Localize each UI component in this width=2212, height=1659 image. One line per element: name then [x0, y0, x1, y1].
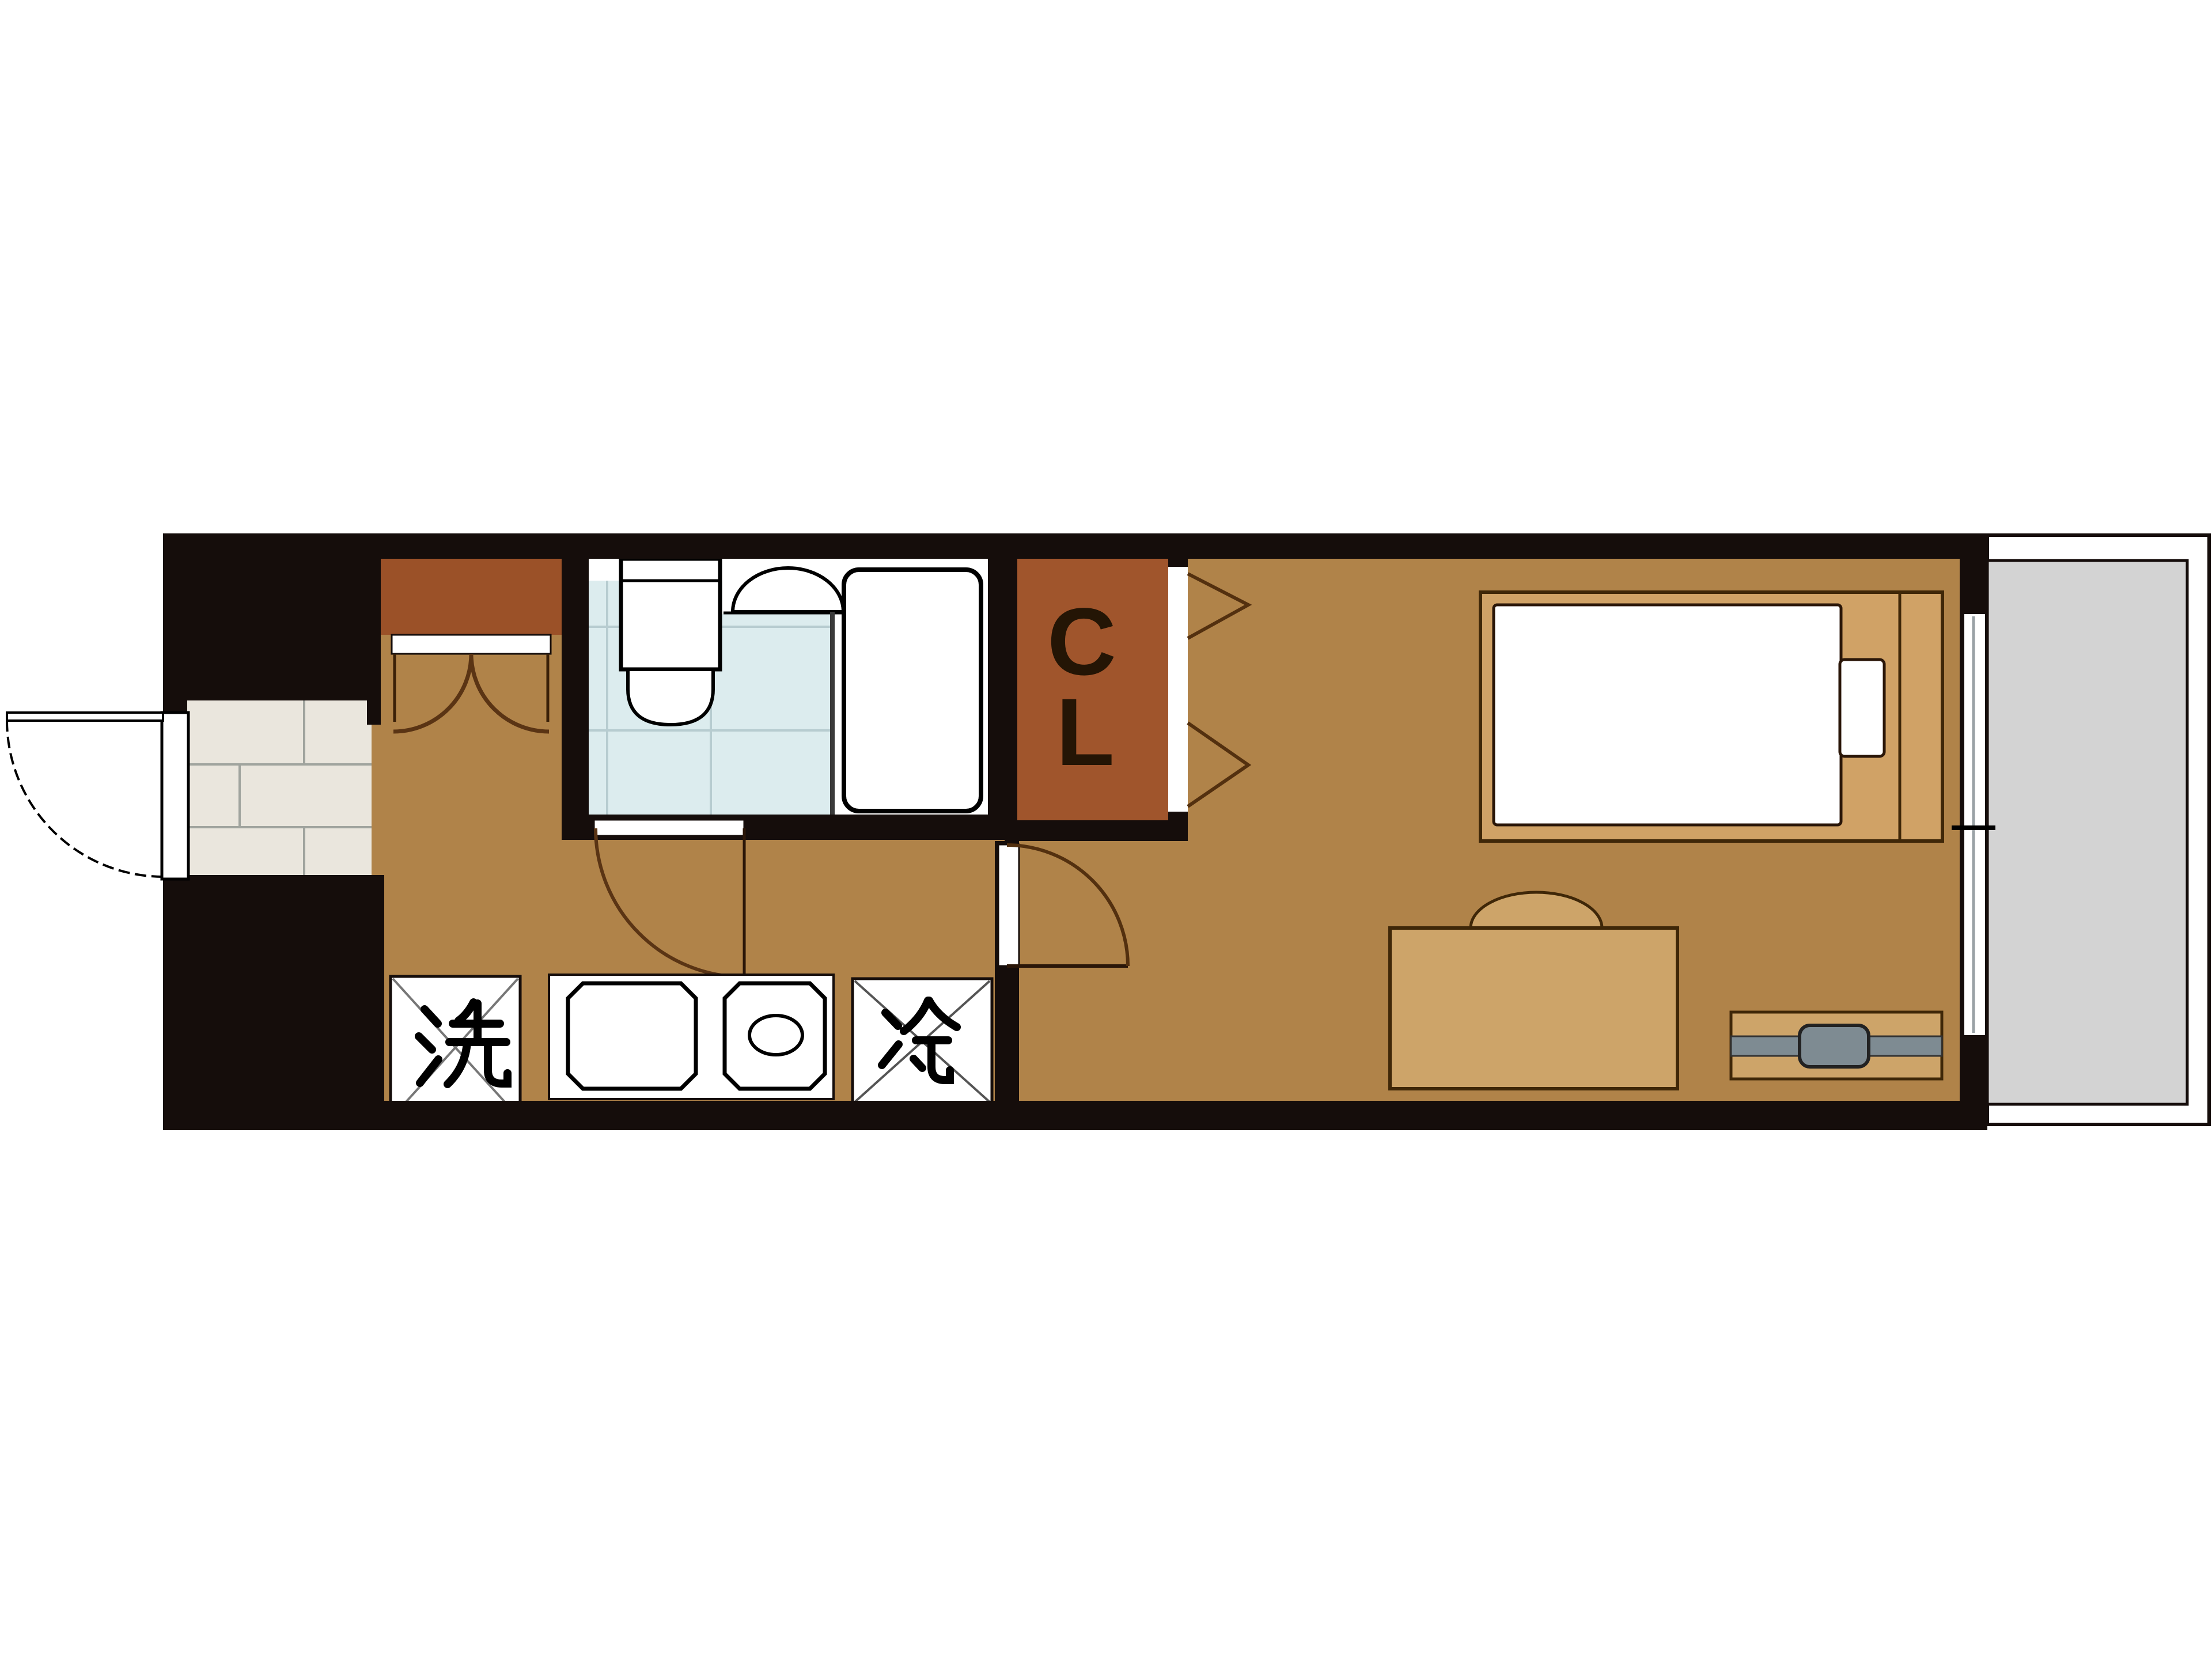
svg-text:L: L [1056, 679, 1114, 786]
